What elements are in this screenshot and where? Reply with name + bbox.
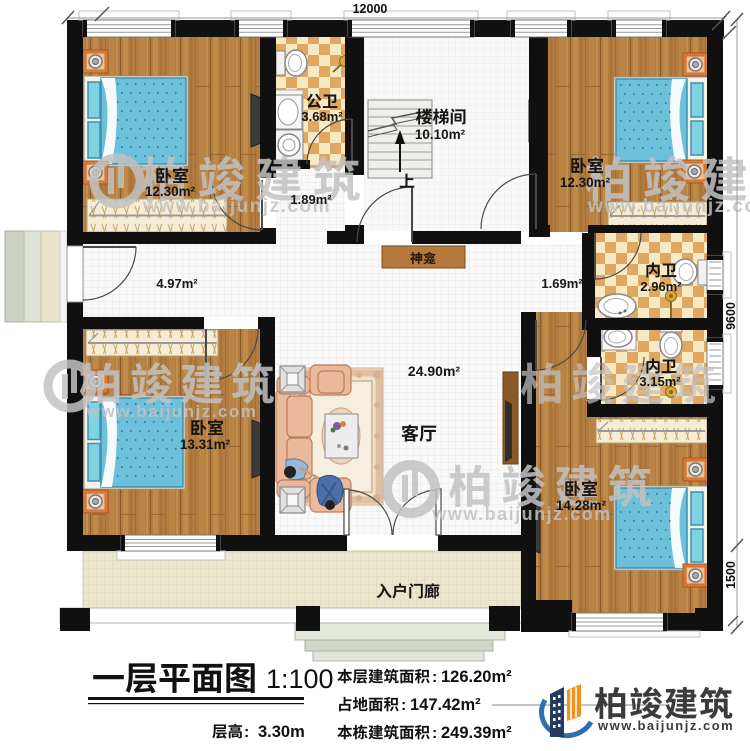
svg-text::: : [432,725,437,742]
svg-text:www.baijunjz.com: www.baijunjz.com [597,718,734,733]
svg-text:1.89m²: 1.89m² [290,192,332,207]
svg-text:2.96m²: 2.96m² [640,279,682,294]
svg-text:12.30m²: 12.30m² [145,184,196,199]
svg-text:1:100: 1:100 [266,664,334,694]
svg-text:3.30m: 3.30m [258,723,305,741]
svg-text:13.31m²: 13.31m² [180,437,231,452]
svg-text:1500: 1500 [724,561,738,589]
svg-text:9600: 9600 [724,302,738,330]
svg-text:10.10m²: 10.10m² [415,127,466,142]
svg-text:3.15m²: 3.15m² [639,374,681,389]
svg-text:4.97m²: 4.97m² [156,276,198,291]
svg-text:14.28m²: 14.28m² [556,498,607,513]
svg-text:126.20m²: 126.20m² [441,668,512,686]
svg-text:1.69m²: 1.69m² [541,276,583,291]
svg-text:12.30m²: 12.30m² [560,175,611,190]
svg-text:12000: 12000 [353,2,388,16]
svg-text:24.90m²: 24.90m² [408,363,460,379]
svg-text:249.39m²: 249.39m² [441,724,512,742]
svg-text:147.42m²: 147.42m² [410,696,481,714]
svg-text::: : [244,724,249,741]
svg-text:3.68m²: 3.68m² [301,109,343,124]
svg-text:www.baijunjz.com: www.baijunjz.com [587,196,750,217]
svg-text::: : [432,669,437,686]
svg-text:www.baijunjz.com: www.baijunjz.com [86,402,258,421]
svg-text::: : [401,697,406,714]
